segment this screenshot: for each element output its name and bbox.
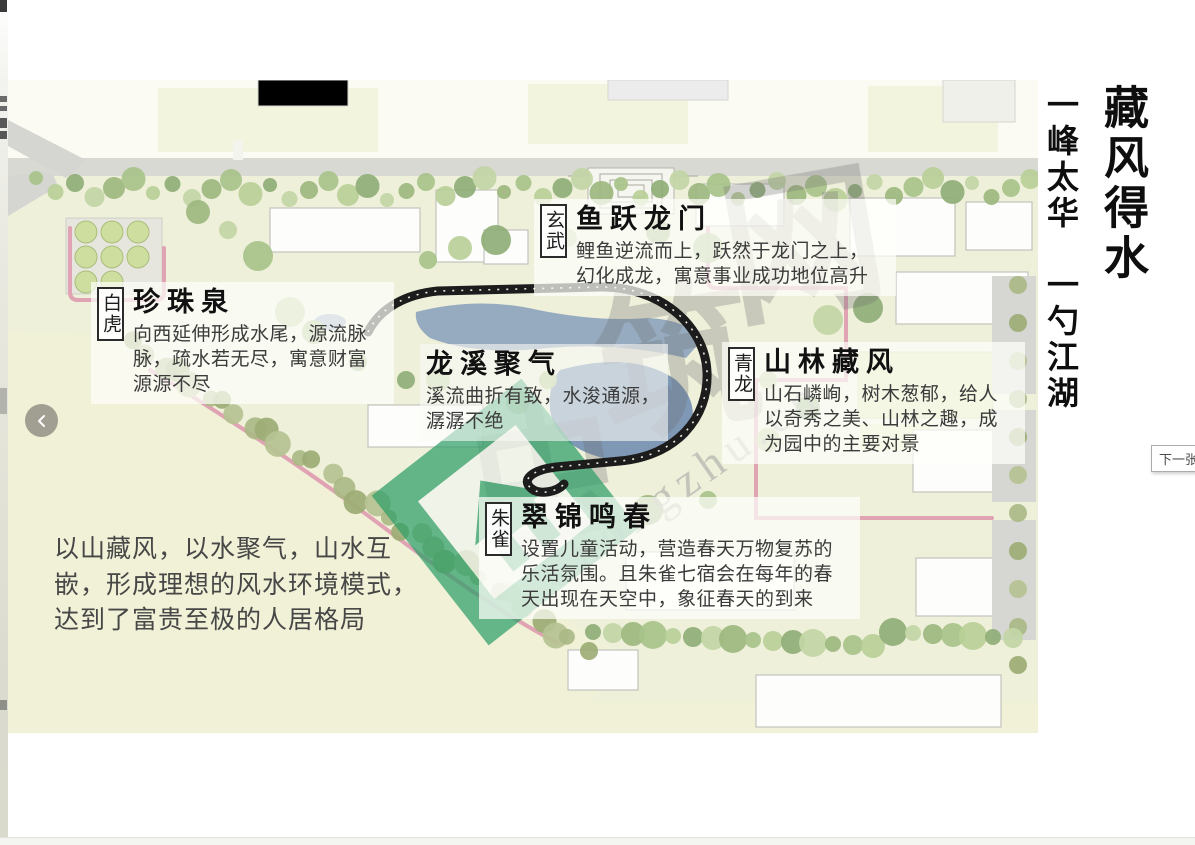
direction-badge-qinglong: 青龙 <box>728 347 755 401</box>
page-subtitle: 一峰太华 一勺江湖 <box>1038 88 1084 418</box>
edge-mark <box>0 131 7 139</box>
annotation-body-baihu: 向西延伸形成水尾，源流脉 脉，疏水若无尽，寓意财富 源源不尽 <box>133 322 367 397</box>
edge-mark <box>0 96 7 102</box>
annotation-baihu: 白虎 珍珠泉 向西延伸形成水尾，源流脉 脉，疏水若无尽，寓意财富 源源不尽 <box>91 282 394 404</box>
annotation-body-longxi: 溪流曲折有致，水浚通源， 潺潺不绝 <box>426 384 660 434</box>
annotation-qinglong: 青龙 山林藏风 山石嶙峋，树木葱郁，给人 以奇秀之美、山林之趣，成 为园中的主要… <box>722 342 1025 464</box>
page-title: 藏风得水 <box>1090 84 1155 314</box>
main-road <box>8 158 1038 176</box>
annotation-xuanwu: 玄武 鱼跃龙门 鲤鱼逆流而上，跃然于龙门之上， 幻化成龙，寓意事业成功地位高升 <box>534 199 896 296</box>
direction-badge-zhuque: 朱雀 <box>485 502 512 556</box>
offsite-building <box>608 80 728 100</box>
annotation-body-zhuque: 设置儿童活动，营造春天万物复苏的 乐活氛围。且朱雀七宿会在每年的春 天出现在天空… <box>521 537 833 612</box>
annotation-zhuque: 朱雀 翠锦鸣春 设置儿童活动，营造春天万物复苏的 乐活氛围。且朱雀七宿会在每年的… <box>479 497 860 619</box>
offsite-building <box>258 80 348 106</box>
road-detail <box>233 140 243 160</box>
previous-slide-button[interactable] <box>25 404 58 437</box>
direction-badge-xuanwu: 玄武 <box>540 204 567 258</box>
chevron-left-icon <box>35 414 49 428</box>
annotation-title-qinglong: 山林藏风 <box>764 347 998 378</box>
summary-text: 以山藏风，以水聚气，山水互 嵌，形成理想的风水环境模式， 达到了富贵至极的人居格… <box>54 532 418 639</box>
annotation-body-qinglong: 山石嶙峋，树木葱郁，给人 以奇秀之美、山林之趣，成 为园中的主要对景 <box>764 382 998 457</box>
edge-mark <box>0 388 7 414</box>
annotation-title-longxi: 龙溪聚气 <box>426 349 660 380</box>
annotation-title-xuanwu: 鱼跃龙门 <box>576 204 869 235</box>
edge-mark <box>0 118 7 128</box>
carousel-edge-strip <box>0 0 8 844</box>
annotation-longxi: 龙溪聚气 溪流曲折有致，水浚通源， 潺潺不绝 <box>420 344 668 441</box>
annotation-title-baihu: 珍珠泉 <box>133 287 367 318</box>
annotation-title-zhuque: 翠锦鸣春 <box>521 502 833 533</box>
edge-mark <box>0 0 7 12</box>
next-slide-button[interactable]: 下一张 <box>1151 445 1195 472</box>
edge-mark <box>0 106 7 111</box>
offsite-building <box>943 80 1015 122</box>
edge-mark <box>0 700 7 710</box>
annotation-body-xuanwu: 鲤鱼逆流而上，跃然于龙门之上， 幻化成龙，寓意事业成功地位高升 <box>576 239 869 289</box>
direction-badge-baihu: 白虎 <box>97 287 124 341</box>
